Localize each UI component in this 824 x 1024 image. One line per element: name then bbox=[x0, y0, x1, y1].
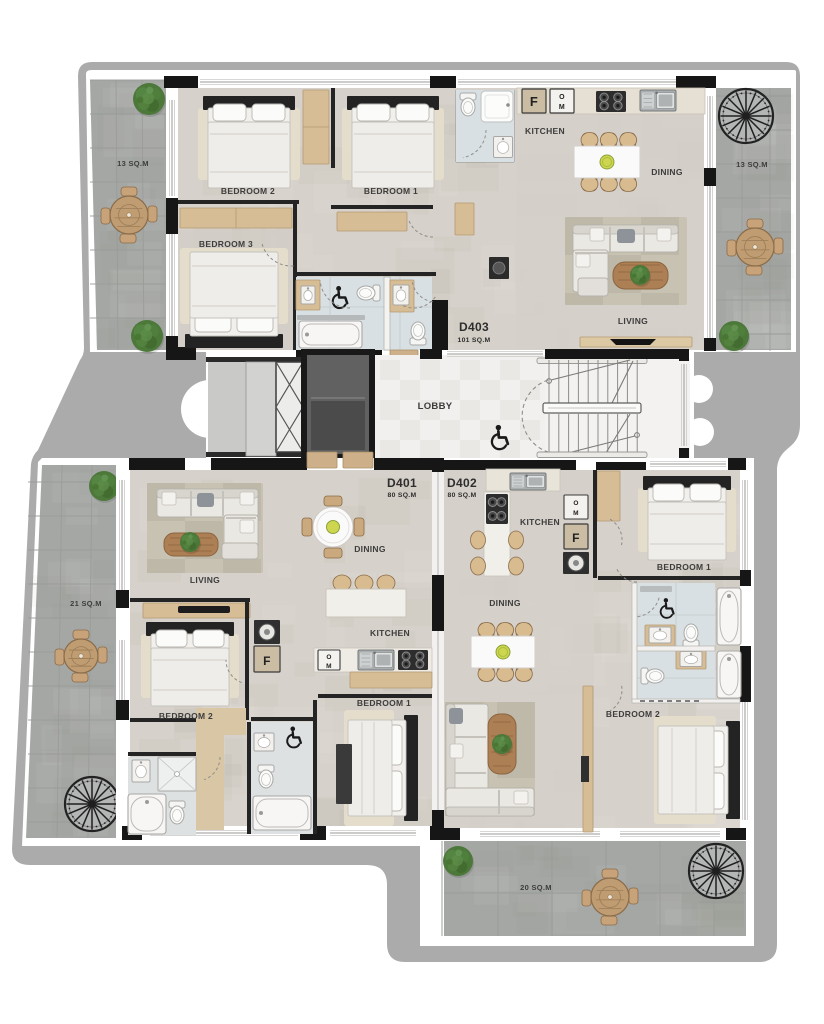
svg-text:KITCHEN: KITCHEN bbox=[520, 517, 560, 527]
svg-text:13 SQ.M: 13 SQ.M bbox=[736, 160, 768, 169]
svg-text:M: M bbox=[573, 510, 579, 517]
svg-text:D403: D403 bbox=[459, 320, 489, 334]
svg-text:KITCHEN: KITCHEN bbox=[370, 628, 410, 638]
svg-text:F: F bbox=[530, 94, 538, 109]
svg-text:D402: D402 bbox=[447, 476, 477, 490]
svg-text:101 SQ.M: 101 SQ.M bbox=[458, 337, 491, 344]
svg-text:BEDROOM 2: BEDROOM 2 bbox=[606, 709, 660, 719]
svg-text:20 SQ.M: 20 SQ.M bbox=[520, 883, 552, 892]
svg-text:DINING: DINING bbox=[354, 544, 386, 554]
svg-text:LOBBY: LOBBY bbox=[418, 401, 453, 412]
svg-text:80 SQ.M: 80 SQ.M bbox=[448, 492, 477, 499]
svg-text:BEDROOM 1: BEDROOM 1 bbox=[357, 698, 411, 708]
svg-text:BEDROOM 2: BEDROOM 2 bbox=[221, 186, 275, 196]
svg-text:BEDROOM 2: BEDROOM 2 bbox=[159, 711, 213, 721]
svg-text:BEDROOM 1: BEDROOM 1 bbox=[657, 562, 711, 572]
svg-text:21 SQ.M: 21 SQ.M bbox=[70, 599, 102, 608]
svg-text:M: M bbox=[326, 663, 332, 670]
svg-text:13 SQ.M: 13 SQ.M bbox=[117, 159, 149, 168]
svg-text:80 SQ.M: 80 SQ.M bbox=[388, 492, 417, 499]
svg-text:DINING: DINING bbox=[489, 598, 521, 608]
svg-text:F: F bbox=[572, 531, 580, 545]
svg-text:O: O bbox=[559, 94, 565, 101]
svg-text:KITCHEN: KITCHEN bbox=[525, 126, 565, 136]
svg-text:O: O bbox=[573, 500, 578, 507]
svg-text:M: M bbox=[559, 104, 565, 111]
svg-text:LIVING: LIVING bbox=[618, 316, 648, 326]
svg-text:D401: D401 bbox=[387, 476, 417, 490]
svg-text:F: F bbox=[263, 654, 271, 668]
svg-text:LIVING: LIVING bbox=[190, 575, 220, 585]
svg-text:DINING: DINING bbox=[651, 167, 683, 177]
svg-text:O: O bbox=[326, 654, 331, 661]
svg-text:BEDROOM 3: BEDROOM 3 bbox=[199, 239, 253, 249]
svg-text:BEDROOM 1: BEDROOM 1 bbox=[364, 186, 418, 196]
